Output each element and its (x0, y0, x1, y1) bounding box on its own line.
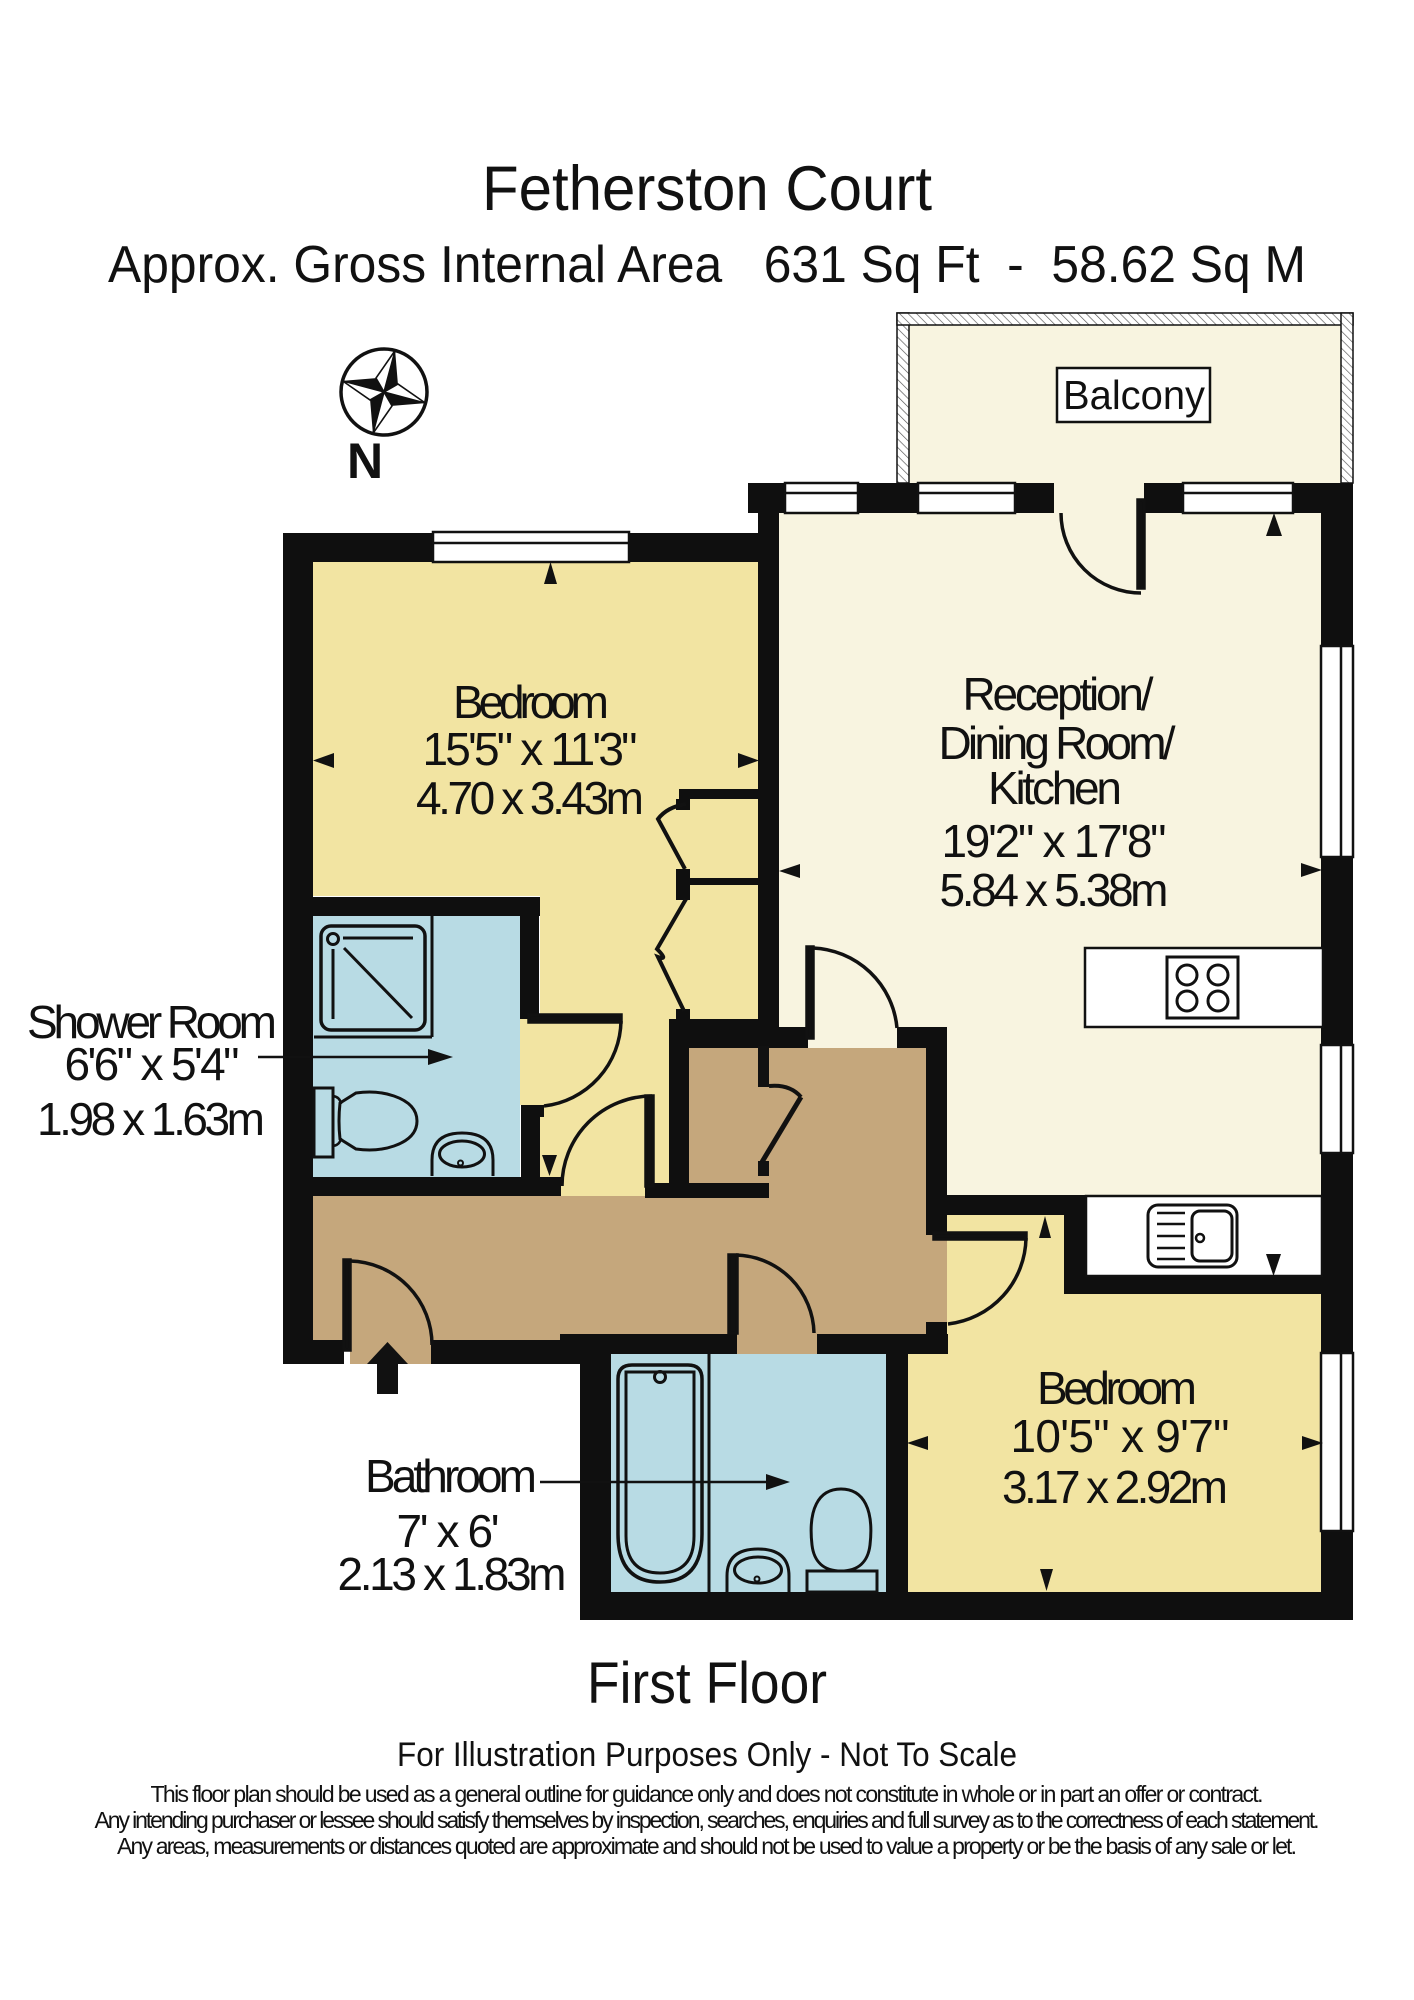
svg-text:Kitchen: Kitchen (988, 762, 1122, 814)
svg-text:6'6" x 5'4": 6'6" x 5'4" (65, 1038, 240, 1090)
svg-text:2.13 x 1.83m: 2.13 x 1.83m (338, 1548, 567, 1600)
svg-text:Bathroom: Bathroom (365, 1450, 537, 1502)
svg-text:N: N (347, 433, 383, 489)
svg-text:Balcony: Balcony (1063, 372, 1205, 418)
svg-text:15'5" x 11'3": 15'5" x 11'3" (423, 723, 638, 775)
svg-text:Fetherston Court: Fetherston Court (482, 154, 932, 224)
svg-text:5.84 x 5.38m: 5.84 x 5.38m (940, 864, 1169, 916)
svg-text:Reception/: Reception/ (963, 668, 1154, 720)
svg-text:Bedroom: Bedroom (453, 676, 609, 728)
svg-text:3.17 x 2.92m: 3.17 x 2.92m (1002, 1461, 1228, 1513)
svg-text:Approx. Gross Internal Area: Approx. Gross Internal Area 631 Sq Ft - … (108, 236, 1306, 294)
svg-text:19'2" x 17'8": 19'2" x 17'8" (942, 815, 1167, 867)
svg-text:This floor plan should be used: This floor plan should be used as a gene… (150, 1781, 1263, 1807)
svg-text:1.98 x 1.63m: 1.98 x 1.63m (37, 1093, 265, 1145)
svg-text:First Floor: First Floor (587, 1651, 827, 1716)
svg-text:Bedroom: Bedroom (1037, 1362, 1197, 1414)
svg-text:For Illustration Purposes Only: For Illustration Purposes Only - Not To … (397, 1736, 1017, 1774)
svg-text:Any intending purchaser or les: Any intending purchaser or lessee should… (94, 1807, 1319, 1833)
svg-text:Any areas, measurements or dis: Any areas, measurements or distances quo… (117, 1833, 1297, 1859)
svg-text:10'5" x 9'7": 10'5" x 9'7" (1011, 1410, 1230, 1462)
svg-text:4.70 x 3.43m: 4.70 x 3.43m (416, 772, 644, 824)
